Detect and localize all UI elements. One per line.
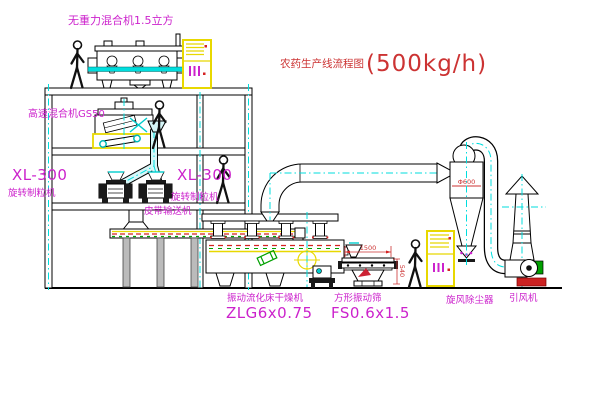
sieve-model-label: FS0.6x1.5 <box>331 304 410 322</box>
sieve-length-dim: 1500 <box>360 244 377 252</box>
gravity-mixer-label: 无重力混合机1.5立方 <box>68 13 174 27</box>
control-cabinet-2 <box>427 231 454 286</box>
control-cabinet-1 <box>183 40 211 88</box>
cyclone-label: 旋风除尘器 <box>446 294 494 306</box>
mixer-shaft-pipe <box>88 67 187 72</box>
belt-conveyor-label: 皮带输送机 <box>144 205 192 217</box>
title-text: 农药生产线流程图 <box>280 57 364 70</box>
granulator-left-model-label: XL-300 <box>12 166 67 184</box>
dryer-model-label: ZLG6x0.75 <box>226 304 313 322</box>
granulator-left-name-label: 旋转制粒机 <box>8 187 56 199</box>
diagram-canvas: 1500 540 Φ600 <box>0 0 600 403</box>
dryer-name-label: 振动流化床干燥机 <box>227 292 304 304</box>
granulator-right-model-label: XL-300 <box>177 166 232 184</box>
high-speed-mixer-label: 高速混合机GS50 <box>28 107 105 120</box>
cad-flow-diagram: 1500 540 Φ600 <box>0 0 600 403</box>
sieve-height-dim: 540 <box>398 265 406 277</box>
title-capacity: (500kg/h) <box>366 51 487 77</box>
sieve-name-label: 方形振动筛 <box>334 292 382 304</box>
fan-label: 引风机 <box>509 292 538 304</box>
granulator-right-name-label: 旋转制粒机 <box>171 191 219 203</box>
